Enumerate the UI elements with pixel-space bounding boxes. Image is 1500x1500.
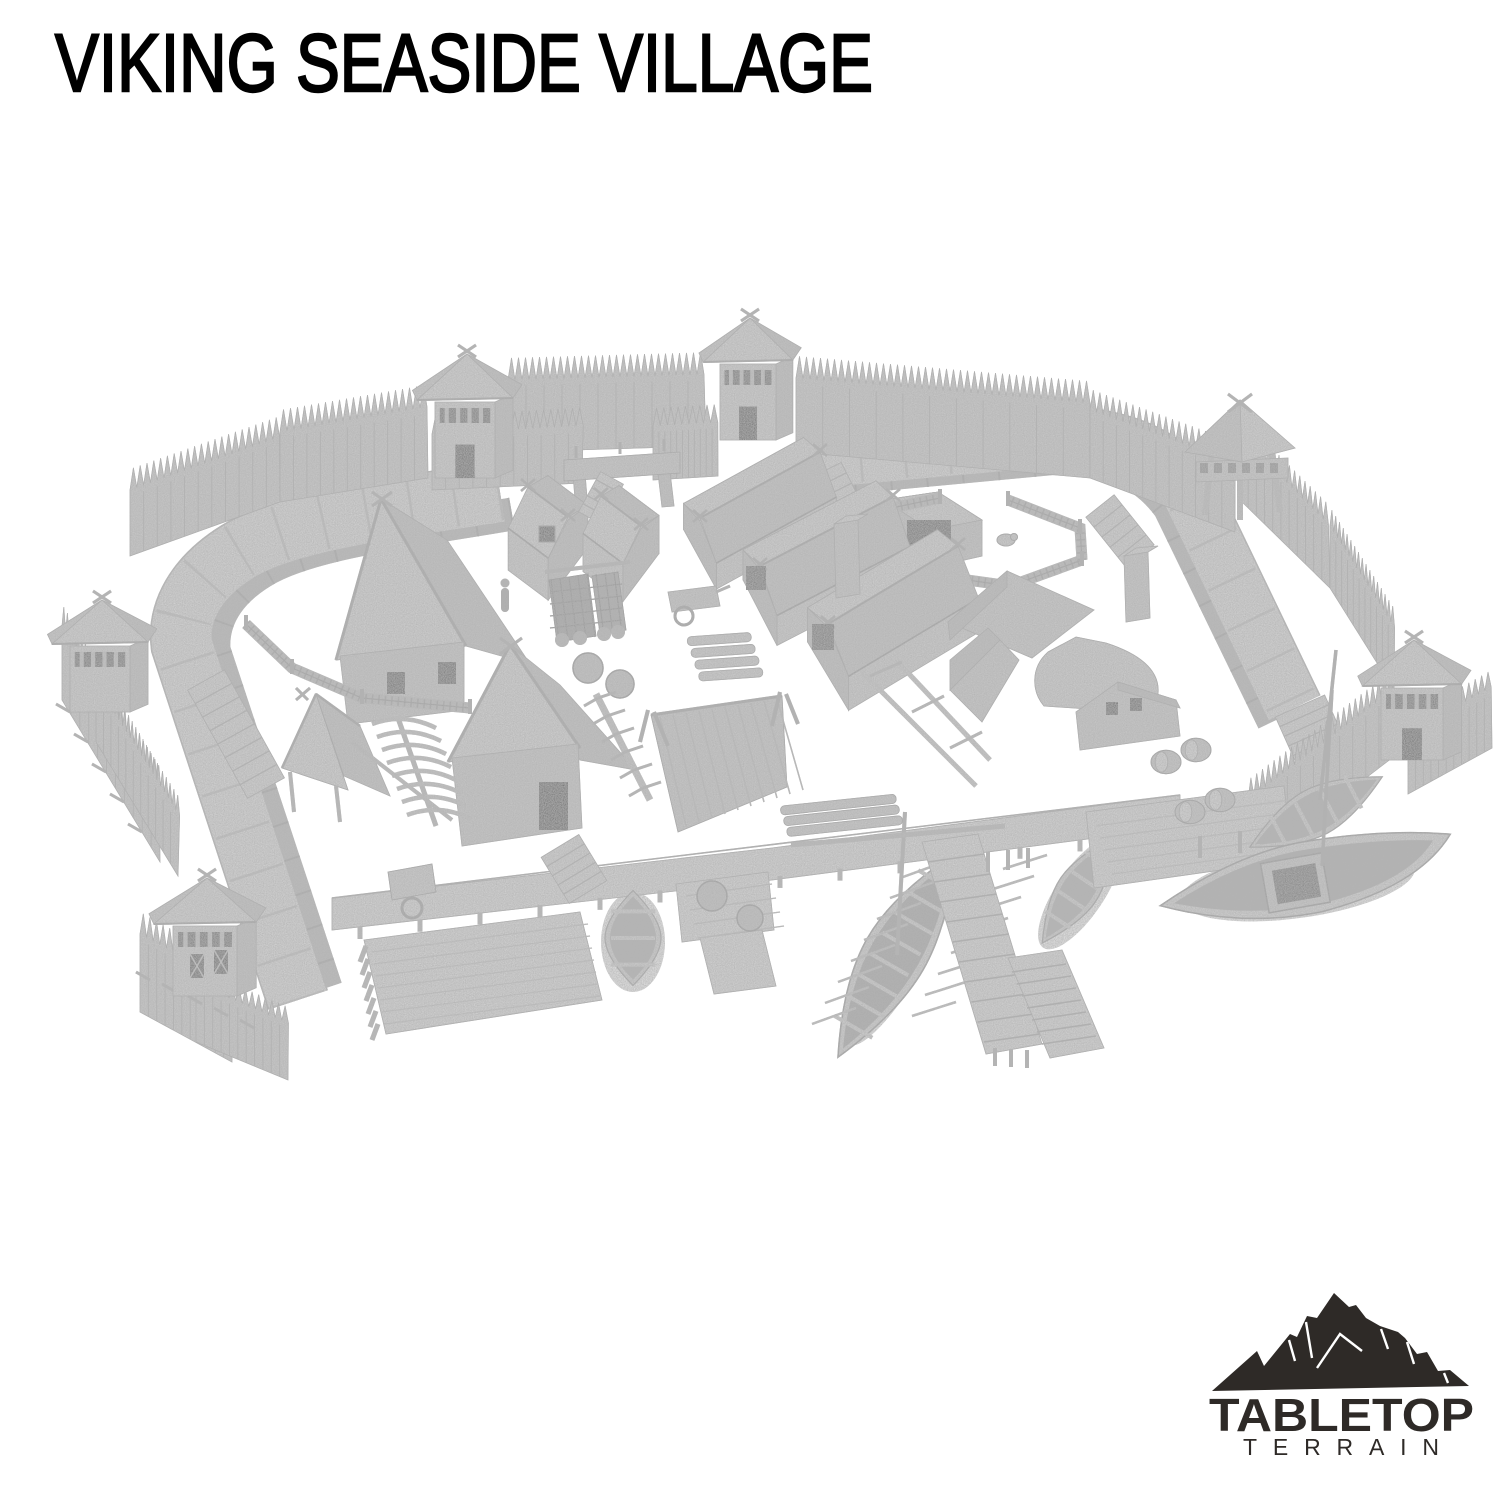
svg-text:VIKING SEASIDE VILLAGE: VIKING SEASIDE VILLAGE	[55, 18, 873, 109]
